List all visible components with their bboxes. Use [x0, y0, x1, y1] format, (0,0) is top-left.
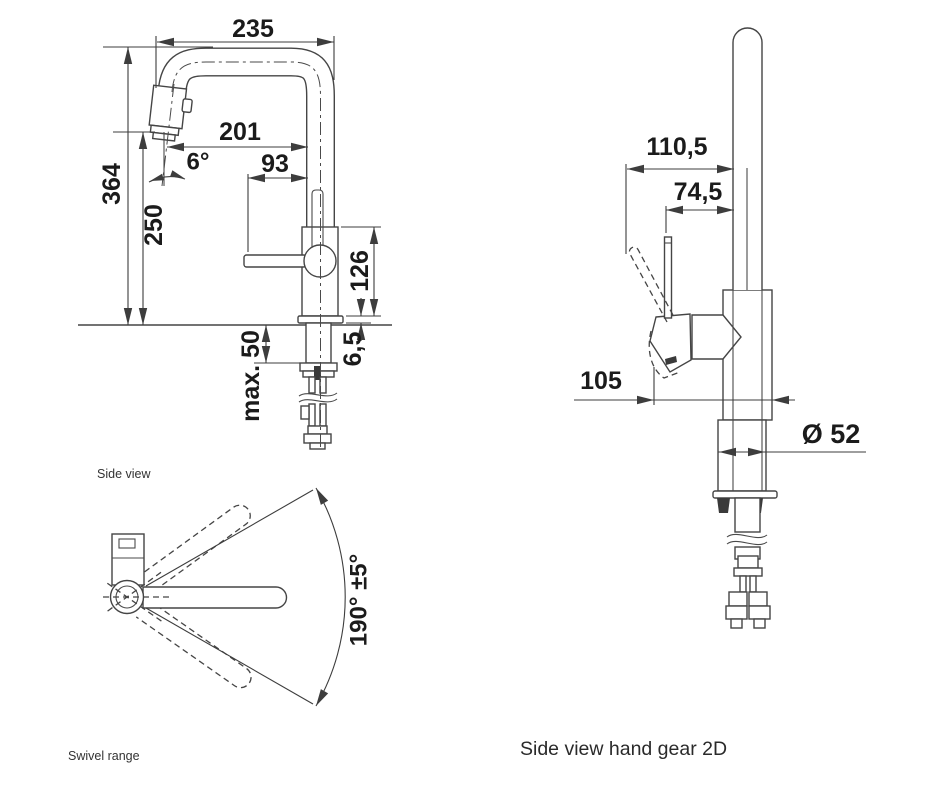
break-line [299, 393, 337, 396]
side-faucet-geometry [629, 28, 777, 628]
base-cylinder [718, 420, 766, 491]
side-view: 110,5 74,5 105 Ø 52 Side view hand gear … [520, 28, 866, 760]
dim-front-reach: 201 [219, 118, 261, 146]
spray-button [182, 99, 192, 113]
spec-sheet-page: 235 364 250 201 6° [0, 0, 940, 788]
side-dimensions: 110,5 74,5 105 Ø 52 [574, 133, 866, 456]
break-line [727, 534, 767, 537]
dim-side-lever-forward: 110,5 [646, 133, 707, 161]
technical-drawing-canvas: 235 364 250 201 6° [0, 0, 940, 788]
base-flange-side [713, 491, 777, 498]
dim-front-base-plate: 6,5 [339, 332, 367, 367]
break-line [727, 541, 767, 544]
break-line [299, 399, 337, 402]
dim-side-lever-up: 74,5 [674, 178, 723, 206]
dim-front-outlet-height: 250 [140, 204, 168, 246]
swivel-view: 190° ±5° Swivel range [68, 486, 373, 763]
dim-front-handle-offset: 93 [261, 150, 289, 178]
dim-front-outlet-angle: 6° [187, 149, 210, 176]
dim-side-base-diameter: Ø 52 [802, 419, 861, 449]
dim-front-body-height: 126 [346, 250, 374, 292]
spray-head-top-view [112, 534, 144, 585]
dim-front-top-width: 235 [232, 15, 274, 43]
dim-front-total-height: 364 [98, 163, 126, 205]
handle-lever-front [244, 255, 306, 267]
swivel-geometry [103, 501, 287, 692]
swivel-arc [316, 488, 345, 706]
front-view: 235 364 250 201 6° [78, 15, 392, 481]
front-under-counter-fittings [299, 323, 337, 449]
spout-arm-lower-position [136, 600, 255, 692]
side-under-counter-fittings [717, 498, 770, 628]
front-view-caption: Side view [97, 467, 151, 481]
swivel-view-caption: Swivel range [68, 749, 140, 763]
dim-swivel-angle: 190° ±5° [346, 554, 373, 646]
dim-front-max-deck: max. 50 [237, 330, 265, 422]
side-view-caption: Side view hand gear 2D [520, 738, 727, 760]
dim-side-body-depth: 105 [580, 367, 622, 395]
